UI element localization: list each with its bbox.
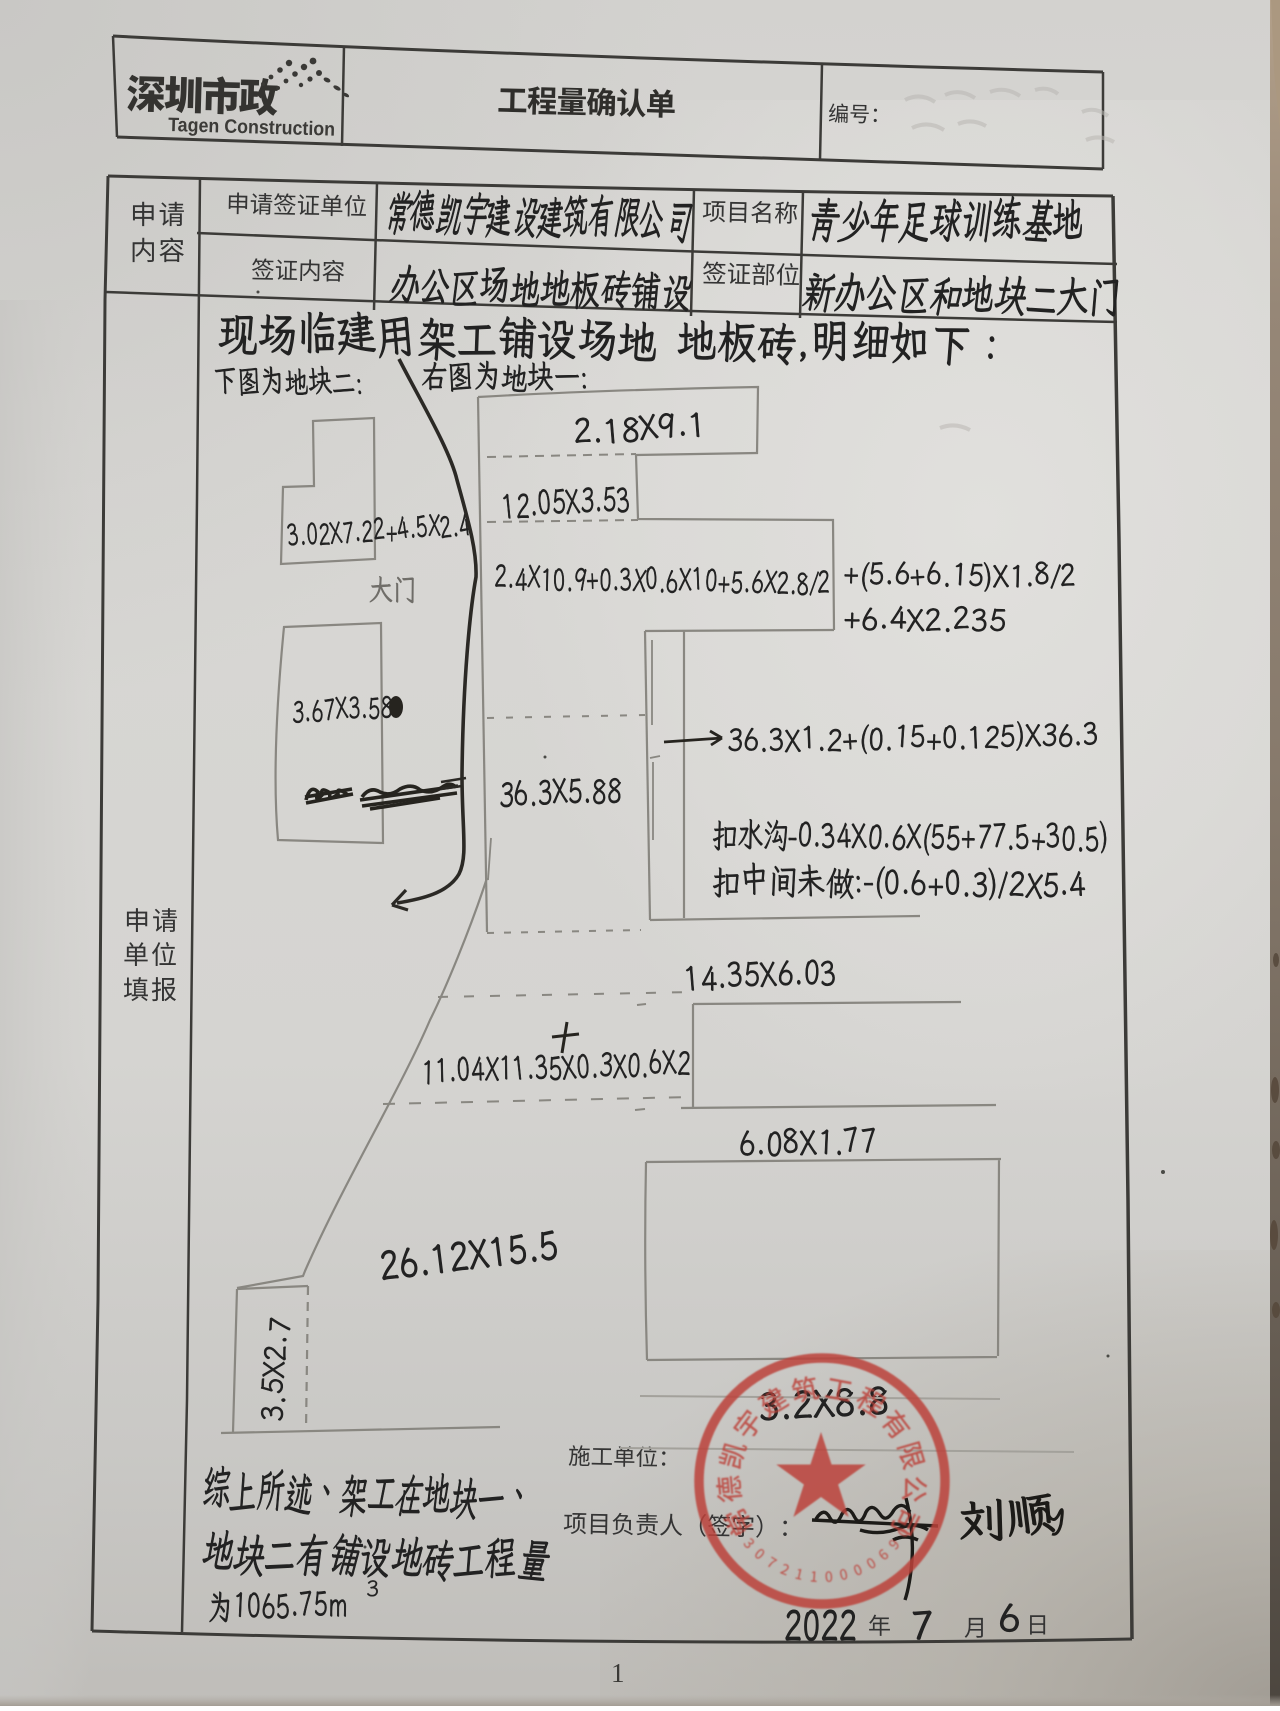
svg-text:1: 1 <box>611 1658 625 1688</box>
svg-text:Tagen Construction: Tagen Construction <box>168 114 336 141</box>
